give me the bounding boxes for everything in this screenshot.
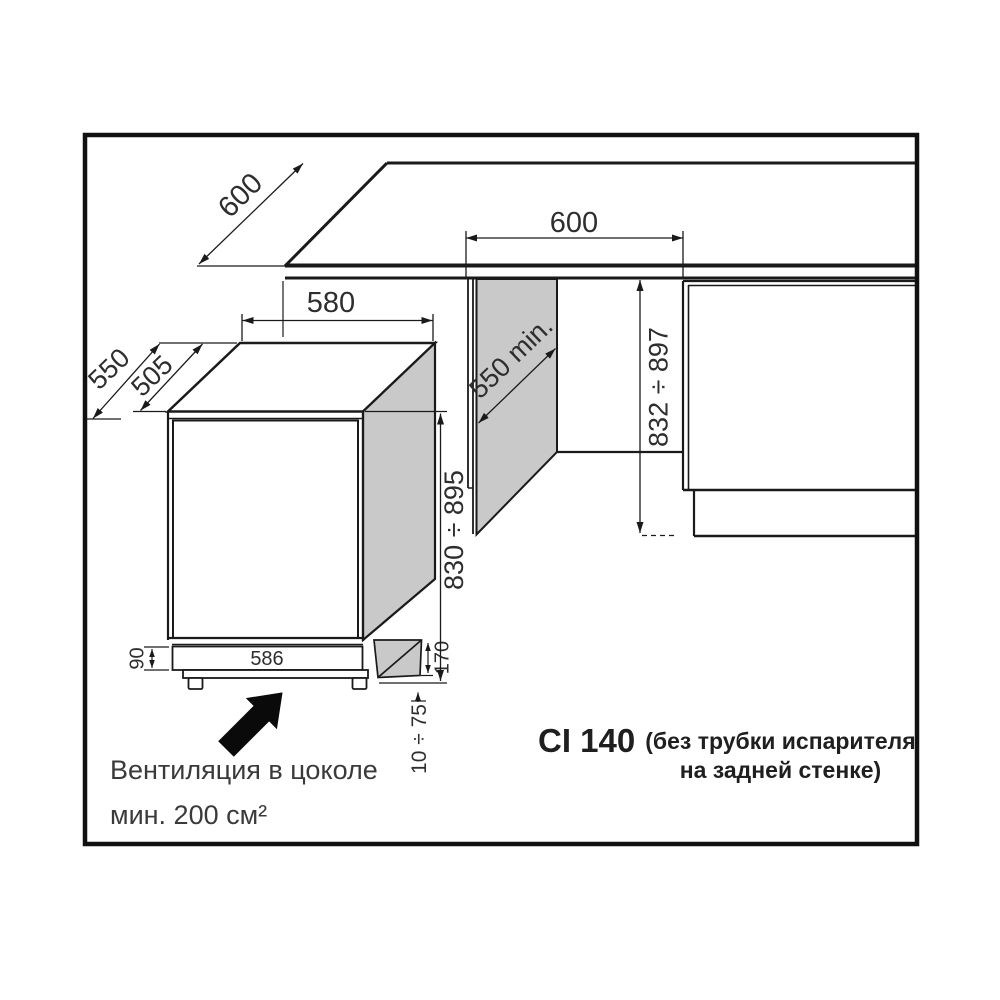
- installation-diagram: 600 600 550 min.: [0, 0, 1000, 1000]
- dim-rear-recess-label: 170: [432, 641, 454, 674]
- diagram-drawing: 600 600 550 min.: [0, 0, 1000, 1000]
- dim-feet-adjust: 10 ÷ 75: [408, 693, 431, 774]
- dim-appliance-width-label: 580: [307, 287, 355, 319]
- dim-niche-height-label: 832 ÷ 897: [643, 327, 673, 447]
- dim-plinth-recess-width-label: 586: [250, 648, 283, 670]
- appliance-door: [173, 421, 358, 639]
- appliance-base: [183, 670, 368, 678]
- dim-appliance-height-label: 830 ÷ 895: [439, 470, 469, 590]
- dim-niche-width-label: 600: [550, 207, 598, 239]
- adjustable-foot-right: [353, 678, 367, 689]
- adjustable-foot-left: [189, 678, 203, 689]
- dim-plinth-height-label: 90: [127, 647, 149, 669]
- dim-feet-adjust-label: 10 ÷ 75: [408, 704, 431, 774]
